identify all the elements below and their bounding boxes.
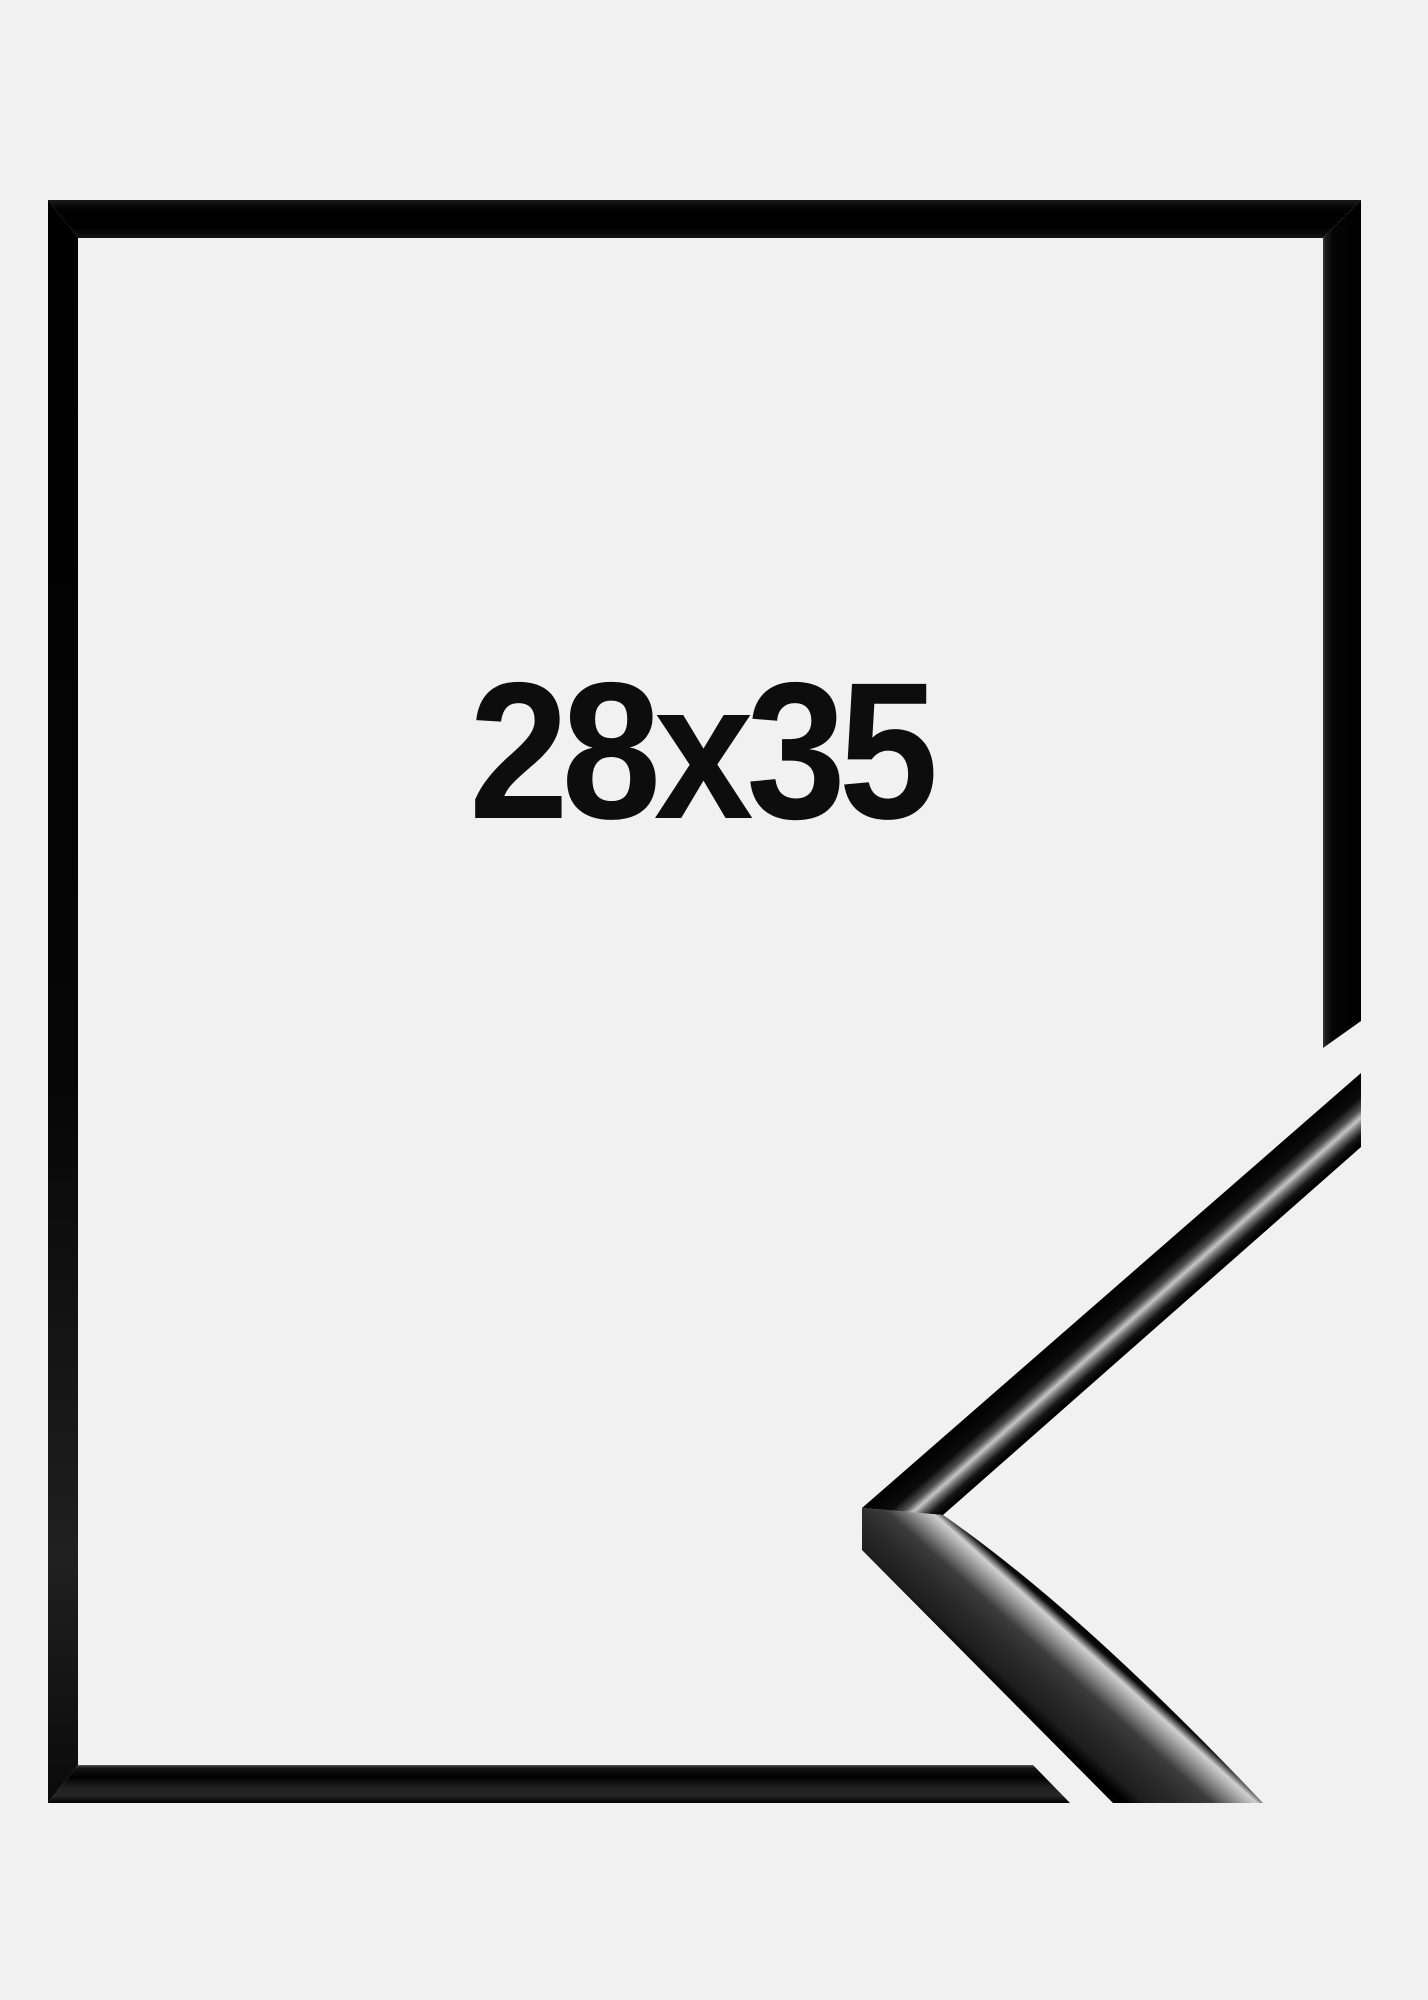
frame-left-bar <box>48 200 78 1803</box>
frame-product-image: 28x35 <box>0 0 1428 2000</box>
product-photo: 28x35 <box>0 0 1428 2000</box>
frame-top-bar <box>48 200 1361 238</box>
frame-bottom-bar-cut <box>48 1765 1070 1803</box>
frame-right-bar-cut <box>1323 200 1361 1048</box>
image-background <box>0 0 1428 2000</box>
size-label: 28x35 <box>469 641 933 860</box>
